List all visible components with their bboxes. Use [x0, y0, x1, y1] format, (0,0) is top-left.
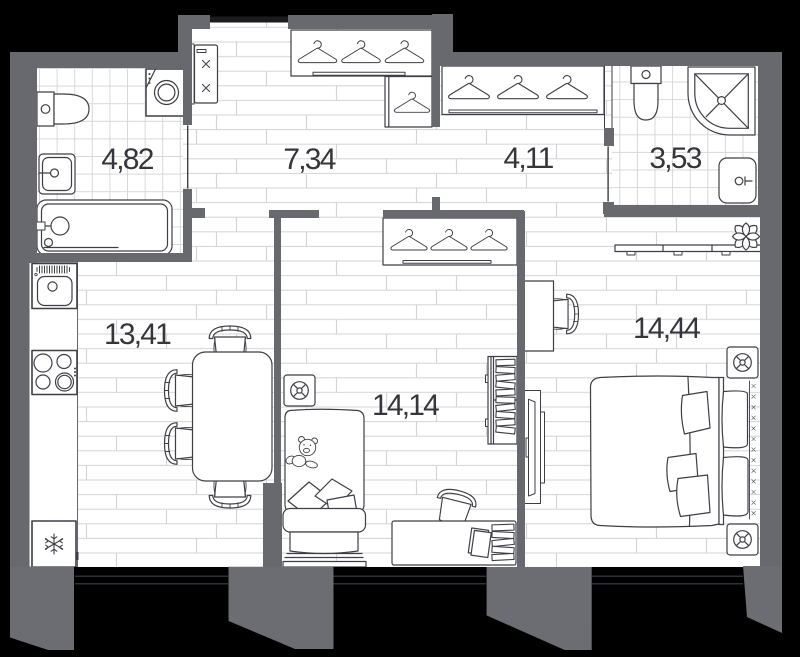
- svg-text:13,41: 13,41: [104, 318, 171, 351]
- svg-text:14,44: 14,44: [633, 312, 700, 345]
- svg-text:4,11: 4,11: [504, 142, 554, 175]
- svg-text:14,14: 14,14: [372, 389, 439, 422]
- svg-text:4,82: 4,82: [101, 143, 153, 176]
- svg-text:7,34: 7,34: [283, 143, 335, 176]
- svg-text:3,53: 3,53: [649, 142, 701, 175]
